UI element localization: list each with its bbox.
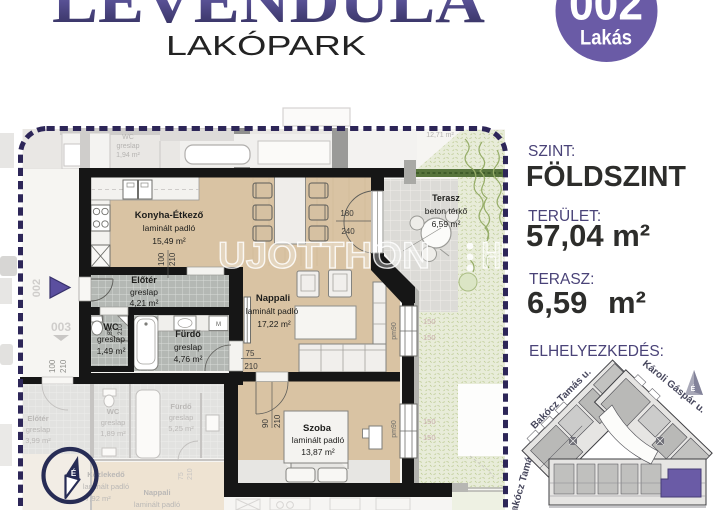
svg-text:6,59: 6,59 <box>527 285 587 320</box>
svg-text:UJOTTHON: UJOTTHON <box>218 235 430 276</box>
svg-text:pm90: pm90 <box>391 420 398 438</box>
svg-text:100: 100 <box>157 252 166 266</box>
svg-text:FÖLDSZINT: FÖLDSZINT <box>526 161 686 193</box>
svg-text:4,76 m²: 4,76 m² <box>174 354 203 364</box>
svg-text:55: 55 <box>107 327 114 335</box>
svg-text:laminált padló: laminált padló <box>134 500 180 509</box>
svg-text:180: 180 <box>340 209 354 218</box>
svg-text:1,89 m²: 1,89 m² <box>100 429 126 438</box>
svg-text:É: É <box>691 384 696 393</box>
svg-text:Terasz: Terasz <box>432 193 460 203</box>
svg-text:Nappali: Nappali <box>143 488 170 497</box>
svg-text:greslap: greslap <box>169 413 194 422</box>
svg-text:Előtér: Előtér <box>131 275 157 285</box>
svg-text:Közlekedő: Közlekedő <box>87 470 125 479</box>
svg-text:12,71 m²: 12,71 m² <box>426 132 454 139</box>
svg-text:15,49 m²: 15,49 m² <box>152 236 186 246</box>
svg-text:150: 150 <box>423 317 436 326</box>
svg-text:57,04 m²: 57,04 m² <box>526 218 650 253</box>
svg-text:ELHELYEZKEDÉS:: ELHELYEZKEDÉS: <box>529 343 664 360</box>
svg-text:laminált padló: laminált padló <box>246 306 299 316</box>
svg-text:greslap: greslap <box>174 342 202 352</box>
svg-text:1,94 m²: 1,94 m² <box>116 152 140 159</box>
svg-text:greslap: greslap <box>117 143 140 150</box>
svg-text:75: 75 <box>246 349 255 358</box>
svg-text:90: 90 <box>261 419 270 428</box>
svg-text:LAKÓPARK: LAKÓPARK <box>166 30 366 61</box>
svg-text:210: 210 <box>168 252 177 266</box>
svg-text:210: 210 <box>117 324 124 335</box>
svg-text:M: M <box>216 322 221 328</box>
svg-text:greslap: greslap <box>26 425 51 434</box>
svg-text:laminált padló: laminált padló <box>143 223 196 233</box>
svg-text:210: 210 <box>187 468 194 480</box>
svg-text:Előtér: Előtér <box>27 414 48 423</box>
svg-text:4,21 m²: 4,21 m² <box>130 298 159 308</box>
svg-text:laminált padló: laminált padló <box>292 435 345 445</box>
svg-text:Fürdő: Fürdő <box>175 329 201 339</box>
svg-text:m²: m² <box>608 285 646 320</box>
svg-text:002: 002 <box>31 279 43 297</box>
svg-text:Konyha-Étkező: Konyha-Étkező <box>135 210 204 221</box>
svg-text:SZINT:: SZINT: <box>528 143 575 160</box>
svg-text:75: 75 <box>178 472 185 480</box>
svg-text:5,25 m²: 5,25 m² <box>168 424 194 433</box>
svg-text:100: 100 <box>48 359 57 373</box>
svg-text:greslap: greslap <box>130 287 158 297</box>
svg-text:laminált padló: laminált padló <box>83 482 129 491</box>
svg-text:6,59 m²: 6,59 m² <box>432 219 461 229</box>
svg-text:3,99 m²: 3,99 m² <box>25 436 51 445</box>
svg-text:13,87 m²: 13,87 m² <box>301 447 335 457</box>
svg-text:Nappali: Nappali <box>256 293 290 304</box>
svg-text:greslap: greslap <box>101 418 126 427</box>
svg-text:210: 210 <box>244 362 258 371</box>
svg-text:pm90: pm90 <box>391 322 398 340</box>
svg-text:Fürdő: Fürdő <box>170 402 192 411</box>
svg-text:Szoba: Szoba <box>303 423 332 434</box>
svg-text:1,49 m²: 1,49 m² <box>97 346 126 356</box>
svg-text:17,22 m²: 17,22 m² <box>257 319 291 329</box>
svg-text:WC: WC <box>107 407 120 416</box>
svg-text:WC: WC <box>122 134 134 141</box>
svg-text:É: É <box>71 469 77 478</box>
svg-text:210: 210 <box>59 359 68 373</box>
svg-text:150: 150 <box>423 433 436 442</box>
svg-text:210: 210 <box>273 414 282 428</box>
svg-text:Lakás: Lakás <box>580 27 632 50</box>
svg-text:003: 003 <box>51 320 71 334</box>
svg-text:beton térkő: beton térkő <box>425 206 468 216</box>
svg-text:150: 150 <box>423 417 436 426</box>
svg-text:150: 150 <box>423 333 436 342</box>
svg-text:HU: HU <box>482 235 521 276</box>
svg-text:002: 002 <box>569 0 643 30</box>
